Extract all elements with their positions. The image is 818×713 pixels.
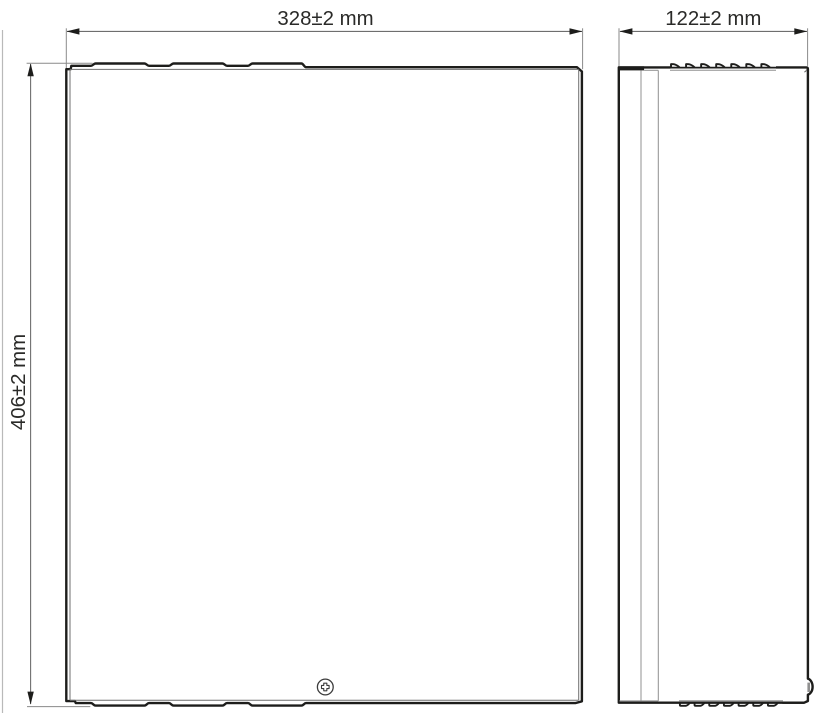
svg-text:122±2 mm: 122±2 mm <box>665 8 761 30</box>
svg-text:328±2 mm: 328±2 mm <box>277 8 373 30</box>
svg-text:406±2 mm: 406±2 mm <box>8 334 30 430</box>
